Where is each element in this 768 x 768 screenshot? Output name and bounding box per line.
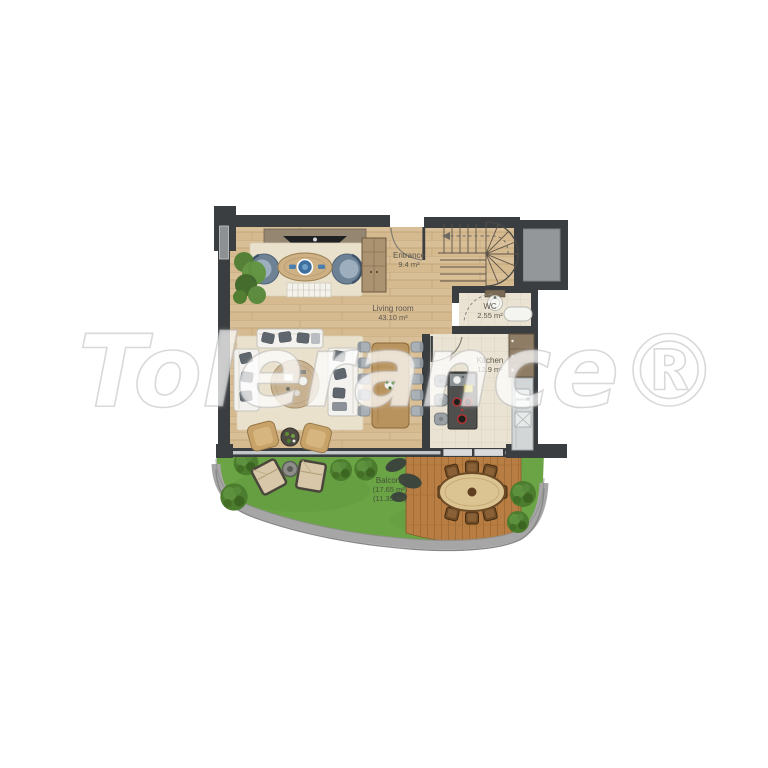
wall-top-right (424, 217, 520, 228)
bush (507, 511, 529, 533)
dining-table (372, 343, 409, 428)
side-table (281, 428, 299, 446)
balcony-side-table (283, 462, 298, 477)
burner (458, 415, 467, 424)
balcony-name: Balcony (360, 476, 420, 485)
bush (220, 483, 247, 510)
sofa (234, 349, 259, 411)
kitchen-label: Kitchen 12.9 m² (459, 356, 521, 374)
kitchen-area: 12.9 m² (459, 365, 521, 374)
balcony-label: Balcony (17.65 m²) (11.35 m²) (360, 476, 420, 503)
kitchen-island (448, 372, 477, 429)
bar-stools (435, 375, 448, 425)
sofa (257, 329, 323, 348)
entrance-area: 9.4 m² (378, 260, 440, 269)
balcony-area-1: (17.65 m²) (360, 485, 420, 494)
burner (464, 398, 472, 406)
kitchen-name: Kitchen (459, 356, 521, 365)
floorplan-svg (0, 0, 768, 768)
left-window (220, 226, 229, 259)
wc-area: 2.55 m² (464, 311, 516, 320)
burner (453, 398, 461, 406)
entrance-name: Entrance (378, 251, 440, 260)
lounge-chair (296, 460, 326, 492)
cutting-board (464, 385, 473, 392)
wall-top (230, 215, 390, 227)
sofa (328, 348, 358, 416)
living-room-name: Living room (362, 304, 424, 313)
bench (287, 283, 331, 297)
wc-wall-bottom (452, 326, 538, 334)
floorplan-image: Entrance 9.4 m² Living room 43.10 m² WC … (0, 0, 768, 768)
wc-wall-left (452, 286, 459, 303)
wc-label: WC 2.55 m² (464, 302, 516, 320)
living-room-label: Living room 43.10 m² (362, 304, 424, 322)
outdoor-dining-set (438, 461, 507, 524)
wc-name: WC (464, 302, 516, 311)
kitchen-counter-sink (512, 378, 533, 450)
bush (330, 459, 352, 481)
balcony-area-2: (11.35 m²) (360, 494, 420, 503)
island-sink (453, 376, 461, 384)
armchair (332, 254, 362, 284)
oval-coffee-table (278, 253, 332, 281)
bush (510, 481, 536, 507)
entrance-label: Entrance 9.4 m² (378, 251, 440, 269)
round-coffee-table (271, 360, 319, 408)
living-room-area: 43.10 m² (362, 313, 424, 322)
